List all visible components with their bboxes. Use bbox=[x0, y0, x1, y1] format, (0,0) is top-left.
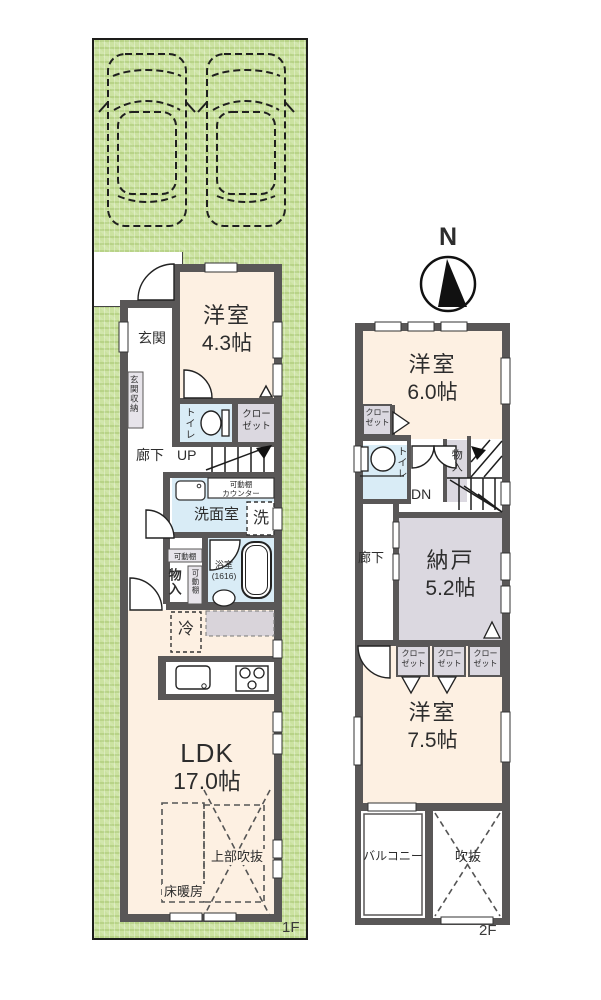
movable-shelf-a-label: 可動棚 bbox=[168, 552, 202, 561]
western-room-6-size: 6.0帖 bbox=[363, 380, 502, 405]
floor2-label: 2F bbox=[479, 922, 497, 940]
floorplan-canvas: N 玄関 玄関収納 洋室 4.3帖 トイレ クローゼット 廊下 UP 可動棚 カ… bbox=[0, 0, 601, 1000]
hallway-1f-label: 廊下 bbox=[136, 447, 164, 464]
western-room-75-name: 洋室 bbox=[363, 700, 502, 726]
closet-1f-label: クローゼット bbox=[239, 409, 274, 433]
open-above-label: 上部吹抜 bbox=[209, 849, 265, 865]
washroom-label: 洗面室 bbox=[194, 506, 239, 524]
storage-1f-label: 物入 bbox=[166, 568, 182, 596]
movable-shelf-b-label: 可動棚 bbox=[191, 569, 200, 595]
closet-2f-c-label: クローゼット bbox=[435, 649, 464, 669]
western-room-4-3-size: 4.3帖 bbox=[180, 331, 274, 356]
balcony-area bbox=[361, 811, 425, 918]
western-room-75-size: 7.5帖 bbox=[363, 728, 502, 753]
stairs-up-label: UP bbox=[177, 447, 196, 464]
floor1-plan bbox=[119, 263, 282, 922]
ldk-name: LDK bbox=[150, 738, 264, 769]
toilet-icon-1f bbox=[201, 410, 229, 436]
compass-icon bbox=[421, 257, 475, 311]
storeroom-size: 5.2帖 bbox=[399, 576, 502, 601]
floorplan-graphics bbox=[0, 0, 601, 1000]
compass-north-label: N bbox=[433, 222, 463, 252]
toilet-1f-label: トイレ bbox=[182, 407, 194, 440]
storage-2f-label: 物入 bbox=[449, 449, 462, 473]
western-room-4-3-name: 洋室 bbox=[180, 303, 274, 329]
ldk-size: 17.0帖 bbox=[150, 768, 264, 796]
movable-counter-line2: カウンター bbox=[210, 489, 272, 498]
closet-2f-b-label: クローゼット bbox=[399, 649, 428, 669]
entrance-storage-label: 玄関収納 bbox=[129, 375, 139, 413]
balcony-label: バルコニー bbox=[360, 849, 426, 863]
refrigerator-label: 冷 bbox=[172, 620, 200, 639]
closet-2f-a-label: クローゼット bbox=[363, 408, 392, 428]
kitchen-sink-icon bbox=[176, 666, 210, 689]
washing-machine-label: 洗 bbox=[248, 509, 274, 528]
entrance-label: 玄関 bbox=[130, 330, 174, 347]
void-label: 吹抜 bbox=[437, 849, 499, 865]
washbasin-icon bbox=[176, 481, 205, 500]
western-room-6-name: 洋室 bbox=[363, 352, 502, 378]
hallway-2f-label: 廊下 bbox=[358, 550, 384, 566]
parking-car-icon-left bbox=[99, 54, 195, 226]
storeroom-name: 納戸 bbox=[399, 548, 502, 574]
toilet-2f-label: トイレ bbox=[394, 446, 406, 479]
bathroom-size: (1616) bbox=[206, 571, 242, 581]
parking-car-icon-right bbox=[198, 54, 294, 226]
bathroom-name: 浴室 bbox=[206, 560, 242, 571]
floor1-label: 1F bbox=[282, 919, 300, 937]
kitchen-counter bbox=[158, 656, 274, 700]
floor-heating-label: 床暖房 bbox=[162, 884, 205, 900]
stairs-down-label: DN bbox=[411, 486, 431, 503]
kitchen-back-counter bbox=[206, 611, 274, 636]
closet-2f-d-label: クローゼット bbox=[471, 649, 500, 669]
movable-counter-line1: 可動棚 bbox=[210, 480, 272, 489]
